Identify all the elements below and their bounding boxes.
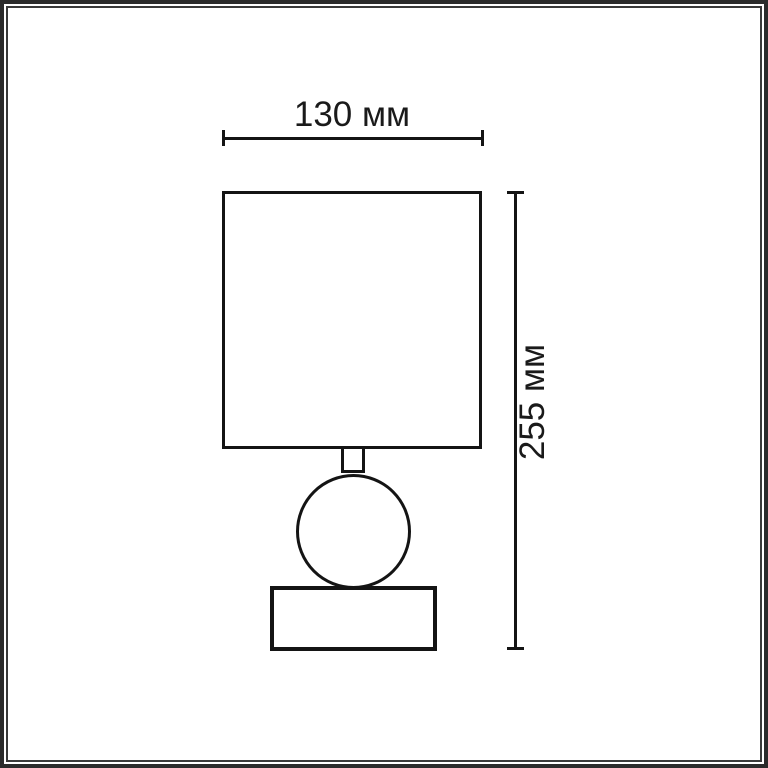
height-dimension-label: 255 мм [513, 292, 553, 512]
height-dimension-top-tick [507, 191, 524, 194]
width-dimension-label: 130 мм [222, 95, 482, 135]
height-dimension-bottom-tick [507, 647, 524, 650]
lamp-dimension-diagram: 130 мм 255 мм [0, 0, 768, 768]
lamp-base-outline [270, 586, 437, 651]
width-dimension-line [223, 137, 483, 140]
lamp-shade-outline [222, 191, 482, 449]
lamp-ball-outline [296, 474, 411, 589]
lamp-neck-outline [341, 446, 365, 473]
